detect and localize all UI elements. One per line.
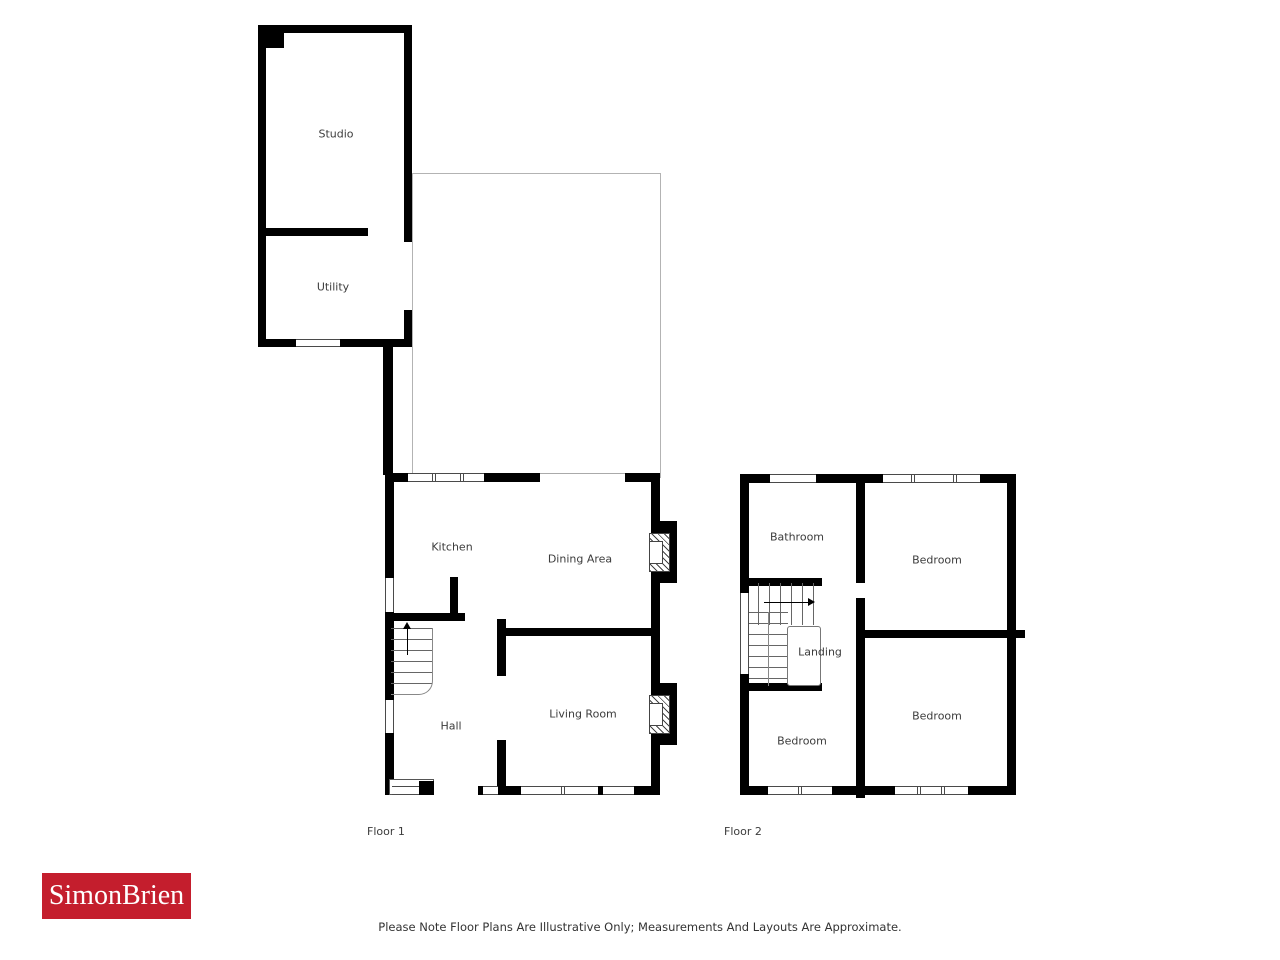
- window-mullion: [941, 787, 945, 794]
- wall: [385, 613, 465, 621]
- room-label-bedroom-back-right: Bedroom: [912, 710, 962, 723]
- window-mullion: [561, 787, 565, 794]
- window: [603, 786, 634, 795]
- room-label-living-room: Living Room: [549, 708, 617, 721]
- window: [408, 473, 484, 482]
- window: [521, 786, 598, 795]
- window: [768, 786, 832, 795]
- room-label-landing: Landing: [798, 646, 842, 659]
- window: [770, 474, 816, 483]
- window-mullion: [911, 475, 915, 482]
- wall: [258, 25, 266, 347]
- window: [483, 786, 498, 795]
- room-label-hall: Hall: [440, 720, 461, 733]
- wall: [419, 781, 434, 795]
- door-opening: [540, 473, 625, 482]
- room-label-bedroom-front: Bedroom: [912, 554, 962, 567]
- window: [740, 593, 749, 674]
- wall: [383, 343, 393, 475]
- window-mullion: [460, 474, 464, 481]
- wall: [856, 598, 865, 786]
- stair-arrow-stem: [764, 602, 810, 603]
- window-mullion: [432, 474, 436, 481]
- window: [895, 786, 968, 795]
- room-label-dining-area: Dining Area: [548, 553, 612, 566]
- wall: [856, 786, 865, 798]
- floor1-caption: Floor 1: [367, 825, 405, 838]
- corner-pillar: [258, 25, 284, 48]
- window: [385, 578, 394, 612]
- floorplan-page: { "page": { "disclaimer": "Please Note F…: [0, 0, 1280, 960]
- room-label-bedroom-back-left: Bedroom: [777, 735, 827, 748]
- disclaimer-text: Please Note Floor Plans Are Illustrative…: [0, 920, 1280, 934]
- wall: [856, 474, 865, 583]
- window: [392, 786, 420, 795]
- room-label-utility: Utility: [317, 281, 349, 294]
- wall: [1007, 474, 1016, 795]
- fireplace-opening: [649, 703, 663, 726]
- window: [296, 339, 340, 347]
- stair-arrow-stem: [407, 629, 408, 655]
- room-label-kitchen: Kitchen: [431, 541, 472, 554]
- wall: [404, 25, 412, 242]
- window-mullion: [798, 787, 802, 794]
- window-mullion: [953, 475, 957, 482]
- stair-arrow: [808, 598, 815, 606]
- stair-arrow: [403, 622, 411, 629]
- window: [385, 700, 394, 733]
- room-label-bathroom: Bathroom: [770, 531, 824, 544]
- wall: [258, 228, 368, 236]
- window: [883, 474, 980, 483]
- room-label-studio: Studio: [318, 128, 353, 141]
- stairs: [391, 628, 433, 695]
- wall-stub: [1016, 630, 1025, 638]
- door-opening: [434, 786, 478, 795]
- logo: SimonBrien: [42, 873, 191, 919]
- wall: [865, 630, 1007, 638]
- fireplace-opening: [649, 541, 663, 564]
- stair-edge: [768, 612, 769, 686]
- logo-text: SimonBrien: [49, 880, 184, 912]
- window-mullion: [917, 787, 921, 794]
- floor2-caption: Floor 2: [724, 825, 762, 838]
- wall: [497, 740, 506, 786]
- wall: [497, 628, 660, 636]
- boundary-outline: [412, 173, 661, 478]
